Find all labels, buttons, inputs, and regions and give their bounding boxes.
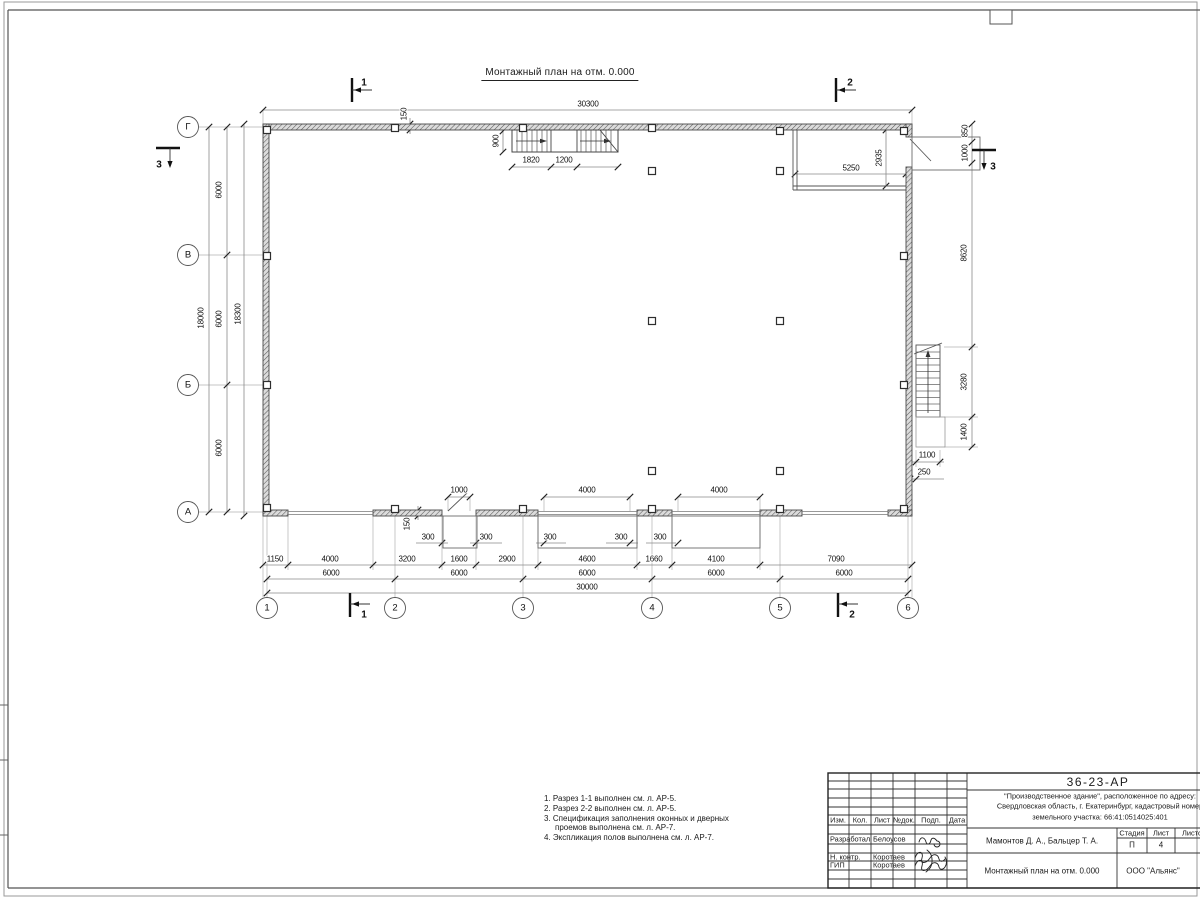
svg-text:3: 3 [520,603,525,614]
note-line: 4. Экспликация полов выполнена см. л. АР… [544,833,729,843]
col-ndok: №док. [893,816,915,825]
svg-text:300: 300 [544,533,557,542]
note-line: проемов выполнена см. л. АР-7. [544,823,729,833]
svg-text:6000: 6000 [836,569,854,578]
svg-text:30300: 30300 [577,100,599,109]
svg-text:5: 5 [777,603,782,614]
svg-text:1000: 1000 [451,486,469,495]
svg-text:4600: 4600 [579,555,597,564]
svg-text:300: 300 [615,533,628,542]
svg-text:А: А [185,507,192,518]
svg-text:300: 300 [480,533,493,542]
dimension-lines [206,107,975,596]
col-list: Лист [874,816,890,825]
project-address-line1: "Производственное здание", расположенное… [1004,792,1196,801]
svg-text:1: 1 [361,610,367,621]
project-address-line3: земельного участка: 66:41:0514025:401 [1032,813,1167,822]
role-developed-name: Белоусов [873,835,906,844]
svg-text:1: 1 [361,78,367,89]
svg-text:1400: 1400 [960,423,969,441]
role-developed-label: Разработал [830,835,870,844]
signatures [915,838,947,872]
plan-title: Монтажный план на отм. 0.000 [481,67,638,81]
sheet-label: Лист [1153,829,1169,838]
svg-text:6000: 6000 [215,181,224,199]
svg-text:3: 3 [156,160,162,171]
svg-text:4000: 4000 [711,486,729,495]
svg-text:850: 850 [961,124,970,137]
svg-text:2: 2 [392,603,397,614]
svg-text:1200: 1200 [556,156,574,165]
svg-text:4: 4 [649,603,654,614]
svg-text:6000: 6000 [451,569,469,578]
col-izm: Изм. [830,816,846,825]
sheet-value: 4 [1159,841,1163,850]
svg-text:4100: 4100 [708,555,726,564]
company-name: ООО "Альянс" [1126,867,1180,876]
note-line: 3. Спецификация заполнения оконных и две… [544,814,729,824]
svg-text:3200: 3200 [399,555,417,564]
svg-text:300: 300 [654,533,667,542]
svg-text:1600: 1600 [451,555,469,564]
svg-text:30000: 30000 [576,583,598,592]
svg-text:300: 300 [422,533,435,542]
svg-text:1820: 1820 [523,156,541,165]
svg-text:250: 250 [918,468,931,477]
floor-plan-svg: 121233 ГВБА123456 3030015090018201200525… [0,0,1200,900]
svg-text:Г: Г [185,122,190,133]
authors: Мамонтов Д. А., Бальцер Т. А. [986,837,1098,846]
svg-text:Б: Б [185,380,191,391]
svg-text:1000: 1000 [961,144,970,162]
svg-text:2935: 2935 [875,149,884,167]
sheet-frame [0,2,1200,896]
dimension-labels: 3030015090018201200525029358501000862032… [197,100,970,592]
svg-text:18000: 18000 [197,307,206,329]
col-kol: Кол. [853,816,868,825]
svg-text:150: 150 [403,517,412,530]
role-gip-name: Коротаев [873,861,905,870]
building-geometry [263,124,980,548]
svg-text:150: 150 [400,107,409,120]
grid-and-witness-lines [199,110,978,597]
svg-text:1100: 1100 [919,451,936,460]
svg-text:2: 2 [849,610,855,621]
svg-text:6: 6 [905,603,910,614]
section-markers: 121233 [156,78,996,621]
drawing-title: Монтажный план на отм. 0.000 [985,867,1100,876]
svg-text:2900: 2900 [499,555,517,564]
svg-text:5250: 5250 [843,164,861,173]
svg-text:6000: 6000 [579,569,597,578]
role-gip-label: ГИП [830,861,845,870]
sheets-label: Листов [1182,829,1200,838]
svg-text:3280: 3280 [960,373,969,391]
svg-text:900: 900 [492,134,501,147]
note-line: 1. Разрез 1-1 выполнен см. л. АР-5. [544,794,729,804]
svg-text:4000: 4000 [322,555,340,564]
svg-text:18300: 18300 [234,303,243,325]
col-podp: Подп. [921,816,941,825]
svg-text:6000: 6000 [215,439,224,457]
project-address-line2: Свердловская область, г. Екатеринбург, к… [997,802,1200,811]
svg-text:1: 1 [264,603,269,614]
svg-text:1150: 1150 [267,555,284,564]
svg-text:3: 3 [990,162,996,173]
stage-label: Стадия [1119,829,1144,838]
svg-text:В: В [185,250,191,261]
svg-text:6000: 6000 [323,569,341,578]
doc-number: 36-23-АР [1067,775,1130,789]
notes-block: 1. Разрез 1-1 выполнен см. л. АР-5. 2. Р… [544,794,729,843]
svg-text:1660: 1660 [646,555,664,564]
drawing-sheet: { "sheet": { "plan_title": "Монтажный пл… [0,0,1200,900]
svg-text:8620: 8620 [960,244,969,262]
col-data: Дата [949,816,965,825]
svg-text:2: 2 [847,78,853,89]
svg-text:6000: 6000 [215,310,224,328]
note-line: 2. Разрез 2-2 выполнен см. л. АР-5. [544,804,729,814]
svg-text:4000: 4000 [579,486,597,495]
columns-group [264,125,908,513]
stage-value: П [1129,841,1135,850]
svg-text:6000: 6000 [708,569,726,578]
svg-text:7090: 7090 [828,555,846,564]
